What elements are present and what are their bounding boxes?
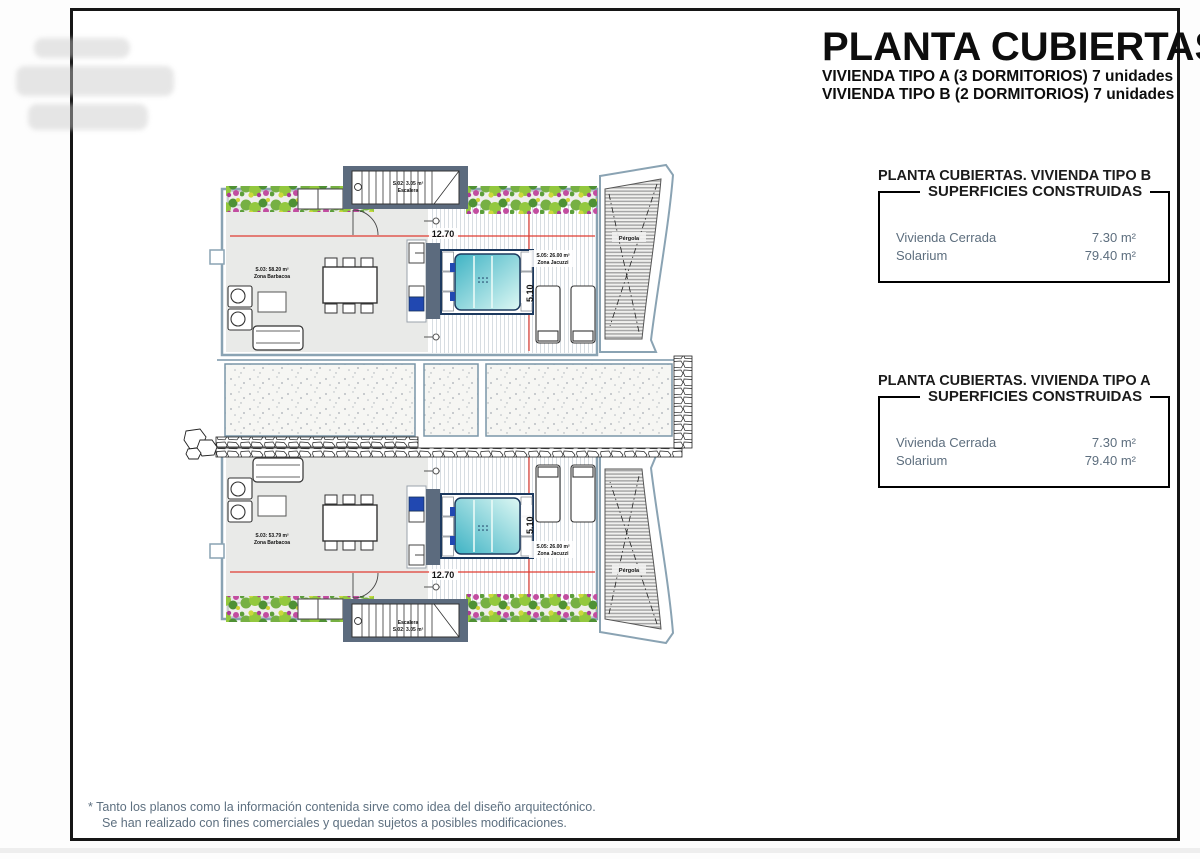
rubble-cluster xyxy=(184,429,217,459)
pergola-label-bottom: Pérgola xyxy=(619,568,640,574)
sofa xyxy=(253,326,303,350)
stairs-name-bottom: Escalera xyxy=(398,620,419,626)
rubble-wall xyxy=(216,437,418,447)
disclaimer-note: * Tanto los planos como la información c… xyxy=(88,799,596,831)
unit-top-shapes xyxy=(210,165,673,355)
wall-notch xyxy=(210,250,224,264)
zone-name-barbacoa-bottom: Zona Barbacoa xyxy=(254,540,290,546)
disclaimer-line-1: * Tanto los planos como la información c… xyxy=(88,799,596,815)
dim-width-top: 12.70 xyxy=(432,229,455,239)
stairs-area-bottom: S.02: 3.05 m² xyxy=(393,627,424,633)
roof-panel xyxy=(486,364,672,436)
area-label-jacuzzi-bottom: S.05: 26.00 m² xyxy=(536,544,570,550)
roof-panel xyxy=(225,364,415,436)
stairs-area-top: S.02: 3.05 m² xyxy=(393,181,424,187)
stairs-name-top: Escalera xyxy=(398,188,419,194)
flowers-right xyxy=(466,186,597,214)
dim-height-top: 5.10 xyxy=(525,284,535,302)
jacuzzi xyxy=(441,250,533,314)
area-label-jacuzzi-top: S.05: 26.00 m² xyxy=(536,253,570,259)
rubble-wall xyxy=(674,356,692,448)
zone-name-jacuzzi-bottom: Zona Jacuzzi xyxy=(537,551,569,557)
pergola xyxy=(600,165,673,352)
dim-width-bottom: 12.70 xyxy=(432,570,455,580)
floor-plan: 12.70 5.10 S.03: 58.20 m² Zona Barbacoa … xyxy=(0,0,1200,859)
mid-roof-section xyxy=(184,356,692,459)
roof-panel xyxy=(424,364,478,436)
zone-name-jacuzzi-top: Zona Jacuzzi xyxy=(537,260,569,266)
side-table xyxy=(258,292,286,312)
divider-wall xyxy=(426,243,440,319)
rubble-wall xyxy=(216,448,682,457)
counter-unit xyxy=(407,240,426,322)
dim-height-bottom: 5.10 xyxy=(525,516,535,534)
pergola-label-top: Pérgola xyxy=(619,236,640,242)
disclaimer-line-2: Se han realizado con fines comerciales y… xyxy=(102,815,596,831)
area-label-barbacoa-top: S.03: 58.20 m² xyxy=(255,267,289,273)
zone-name-barbacoa-top: Zona Barbacoa xyxy=(254,274,290,280)
area-label-barbacoa-bottom: S.03: 53.79 m² xyxy=(255,533,289,539)
unit-bottom-shapes xyxy=(210,453,673,643)
dining-set xyxy=(323,258,377,313)
